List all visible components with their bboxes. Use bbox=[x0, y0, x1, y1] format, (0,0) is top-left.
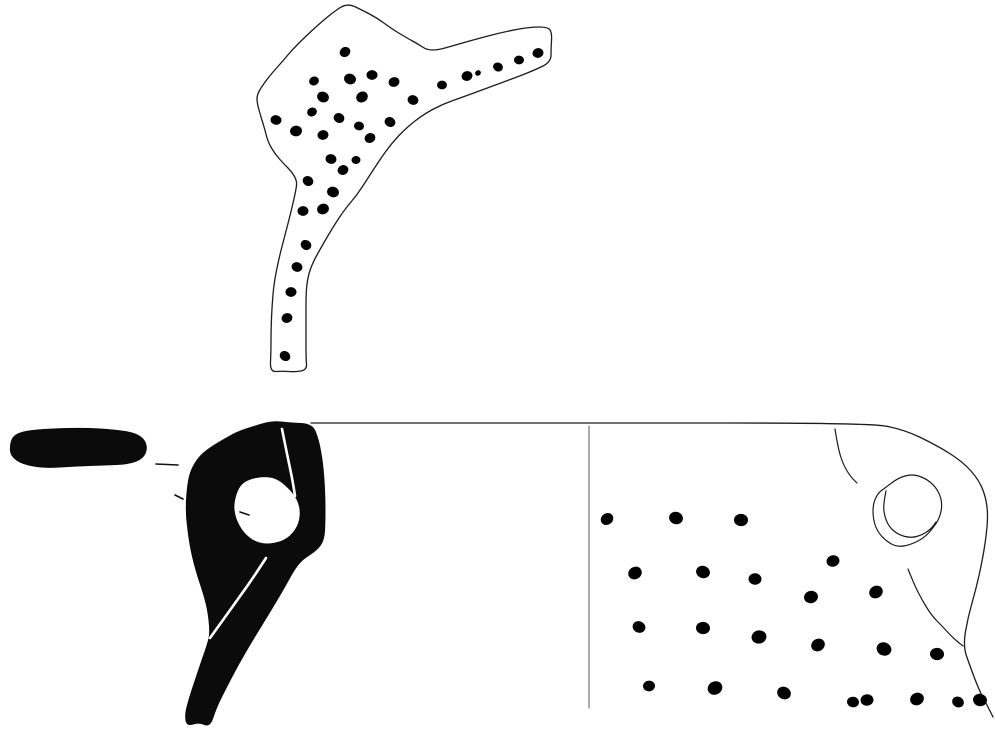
shoulder-curve bbox=[835, 429, 857, 483]
painted-dot bbox=[950, 695, 966, 710]
painted-dot bbox=[631, 619, 647, 634]
handle-attachment-inner bbox=[884, 491, 936, 537]
painted-dot bbox=[748, 573, 762, 585]
pottery-drawing-canvas bbox=[0, 0, 995, 730]
pottery-illustration bbox=[0, 0, 995, 730]
painted-dot bbox=[846, 696, 860, 708]
body-exterior-dots bbox=[598, 510, 988, 710]
handle-fragment-outline bbox=[257, 5, 552, 372]
painted-dot bbox=[809, 636, 827, 654]
painted-dot bbox=[667, 510, 684, 526]
painted-dot bbox=[825, 554, 841, 569]
painted-dot bbox=[598, 511, 615, 528]
painted-dot bbox=[734, 514, 748, 527]
painted-dot bbox=[929, 647, 944, 661]
painted-dot bbox=[626, 564, 644, 582]
painted-dot bbox=[972, 693, 988, 708]
leader-dash-a bbox=[156, 464, 178, 465]
handle-plan-section bbox=[10, 428, 146, 467]
painted-dot bbox=[694, 564, 711, 580]
rim-and-right-edge bbox=[311, 423, 993, 717]
painted-dot bbox=[642, 680, 656, 692]
painted-dot bbox=[803, 589, 820, 604]
painted-dot bbox=[860, 693, 874, 706]
handle-lower-attachment-curve bbox=[908, 569, 963, 646]
painted-dot bbox=[908, 690, 926, 707]
painted-dot bbox=[705, 679, 724, 698]
painted-dot bbox=[775, 684, 793, 701]
leader-dash-c bbox=[240, 512, 249, 515]
painted-dot bbox=[750, 629, 767, 645]
painted-dot bbox=[695, 621, 710, 634]
painted-dot bbox=[867, 583, 885, 601]
painted-dot bbox=[874, 640, 893, 658]
leader-dash-b bbox=[175, 495, 183, 499]
